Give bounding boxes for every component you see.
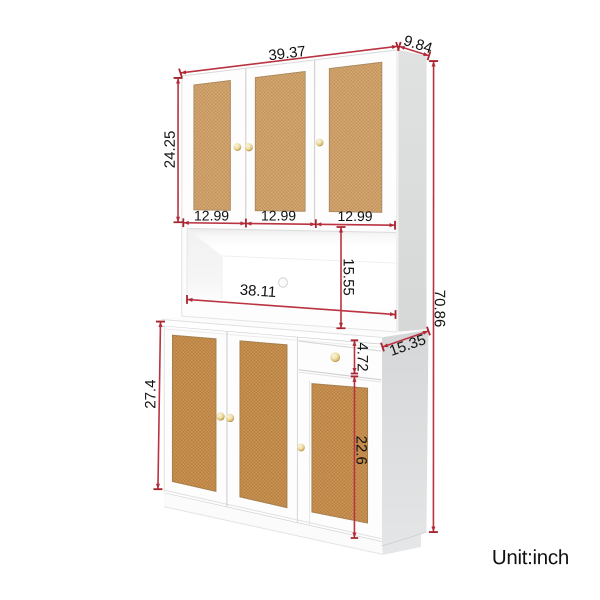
svg-text:24.25: 24.25: [162, 131, 179, 169]
svg-text:12.99: 12.99: [194, 207, 229, 223]
svg-text:38.11: 38.11: [239, 282, 277, 302]
svg-text:12.99: 12.99: [261, 207, 296, 223]
svg-text:4.72: 4.72: [354, 342, 371, 371]
svg-text:22.6: 22.6: [353, 436, 370, 465]
svg-text:15.55: 15.55: [340, 258, 357, 296]
svg-text:12.99: 12.99: [338, 208, 373, 224]
svg-text:70.86: 70.86: [431, 290, 448, 328]
svg-text:Unit:inch: Unit:inch: [492, 546, 569, 569]
svg-text:27.4: 27.4: [142, 380, 159, 409]
